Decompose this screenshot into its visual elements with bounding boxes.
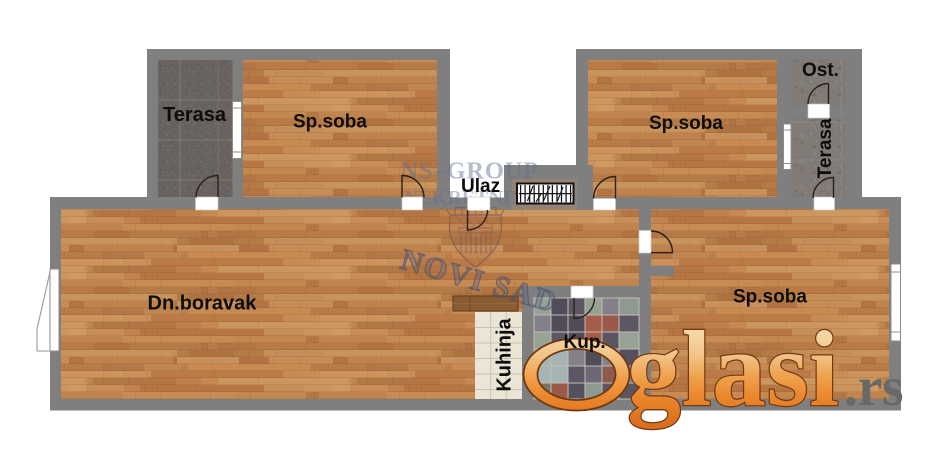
svg-text:.rs: .rs [844, 356, 904, 417]
svg-text:Sp.soba: Sp.soba [649, 113, 723, 134]
svg-text:Dn.boravak: Dn.boravak [148, 293, 258, 315]
svg-text:Ost.: Ost. [802, 60, 839, 81]
svg-text:Sp.soba: Sp.soba [293, 112, 367, 133]
svg-text:Kuhinja: Kuhinja [494, 317, 516, 391]
svg-text:Ulaz: Ulaz [461, 176, 500, 197]
svg-text:glasi: glasi [627, 310, 840, 429]
svg-text:Terasa: Terasa [815, 118, 836, 178]
svg-text:Sp.soba: Sp.soba [733, 287, 807, 308]
svg-text:Terasa: Terasa [163, 104, 227, 126]
svg-text:Kup.: Kup. [564, 332, 606, 353]
